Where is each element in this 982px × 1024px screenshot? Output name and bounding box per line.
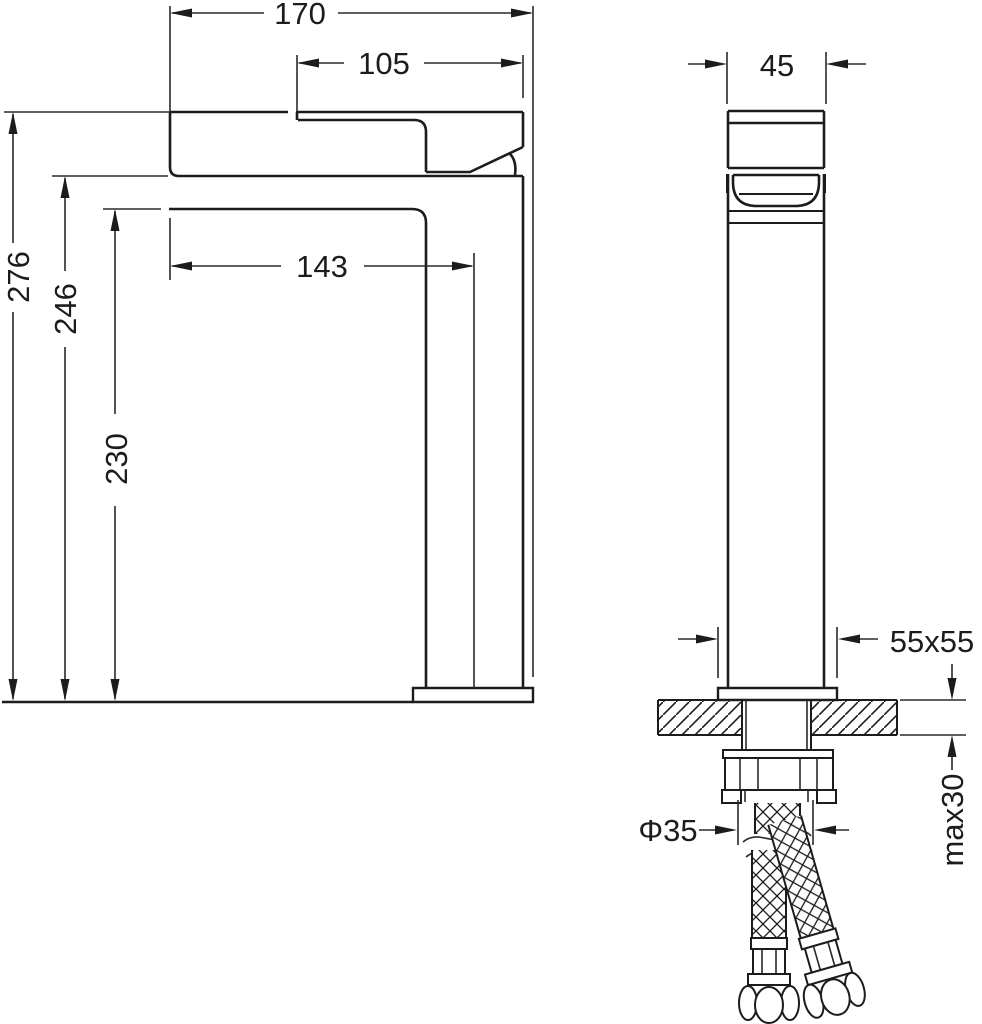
faucet-technical-drawing: 170 105 143 276 246 bbox=[0, 0, 982, 1024]
hose-left-nut-lobe-2 bbox=[755, 987, 783, 1023]
spout-tip-and-underside bbox=[170, 112, 523, 176]
arrow-up-icon bbox=[948, 735, 957, 757]
ext-max30 bbox=[900, 700, 966, 735]
arrow-left-icon bbox=[814, 826, 836, 835]
handle-lever-underside bbox=[426, 147, 523, 172]
dim-230-label: 230 bbox=[99, 433, 134, 485]
arrow-right-icon bbox=[696, 635, 718, 644]
base-plate-front bbox=[718, 688, 837, 700]
arrow-down-icon bbox=[61, 679, 70, 701]
dim-55x55-label: 55x55 bbox=[890, 624, 974, 659]
technical-drawing-page: 170 105 143 276 246 bbox=[0, 0, 982, 1024]
dim-143: 143 bbox=[170, 249, 474, 284]
arrow-left-icon bbox=[170, 9, 192, 18]
arrow-left-icon bbox=[297, 59, 319, 68]
arrow-down-icon bbox=[948, 678, 957, 700]
dim-45: 45 bbox=[688, 48, 866, 83]
dim-246: 246 bbox=[48, 176, 83, 701]
dimensions: 170 105 143 276 246 bbox=[1, 0, 974, 867]
dim-max30-label: max30 bbox=[935, 773, 970, 866]
dim-45-label: 45 bbox=[760, 48, 794, 83]
hose-left-collar2 bbox=[748, 974, 790, 985]
arrow-left-icon bbox=[838, 635, 860, 644]
dim-max30: max30 bbox=[935, 664, 970, 867]
dim-phi35-label: Φ35 bbox=[638, 813, 697, 848]
ext-55x55 bbox=[718, 627, 837, 678]
dim-105: 105 bbox=[297, 46, 523, 81]
dim-phi35: Φ35 bbox=[638, 813, 849, 848]
arrow-right-icon bbox=[452, 262, 474, 271]
arrow-right-icon bbox=[715, 826, 737, 835]
hose-left-hex bbox=[753, 949, 785, 974]
arrow-up-icon bbox=[9, 112, 18, 134]
arrow-up-icon bbox=[61, 176, 70, 198]
dim-276: 276 bbox=[1, 112, 36, 701]
arrow-down-icon bbox=[111, 679, 120, 701]
front-view bbox=[658, 111, 897, 1023]
side-view bbox=[2, 112, 533, 702]
arrow-up-icon bbox=[111, 209, 120, 231]
dim-230: 230 bbox=[99, 209, 134, 701]
dim-55x55: 55x55 bbox=[678, 624, 974, 659]
locknut-ear-right bbox=[817, 790, 836, 803]
arrow-left-icon bbox=[826, 60, 848, 69]
dim-276-label: 276 bbox=[1, 251, 36, 303]
dim-170-label: 170 bbox=[274, 0, 326, 31]
spout-inner-line bbox=[298, 120, 426, 172]
hose-left-collar bbox=[751, 938, 787, 949]
base-plate-side bbox=[413, 688, 533, 702]
handle-tip-arc bbox=[509, 153, 515, 175]
counter-hatch-right bbox=[811, 700, 897, 735]
arrow-right-icon bbox=[511, 9, 533, 18]
arrow-right-icon bbox=[705, 60, 727, 69]
supply-hoses bbox=[739, 803, 869, 1023]
dim-143-label: 143 bbox=[296, 249, 348, 284]
counter-hatch-left bbox=[658, 700, 742, 735]
arrow-right-icon bbox=[501, 59, 523, 68]
dim-246-label: 246 bbox=[48, 283, 83, 335]
locknut-flange bbox=[723, 750, 833, 758]
dim-105-label: 105 bbox=[358, 46, 410, 81]
dim-170: 170 bbox=[170, 0, 533, 31]
arrow-left-icon bbox=[170, 262, 192, 271]
arrow-down-icon bbox=[9, 679, 18, 701]
handle-front-outline bbox=[733, 175, 819, 206]
counter-deck bbox=[658, 700, 897, 735]
